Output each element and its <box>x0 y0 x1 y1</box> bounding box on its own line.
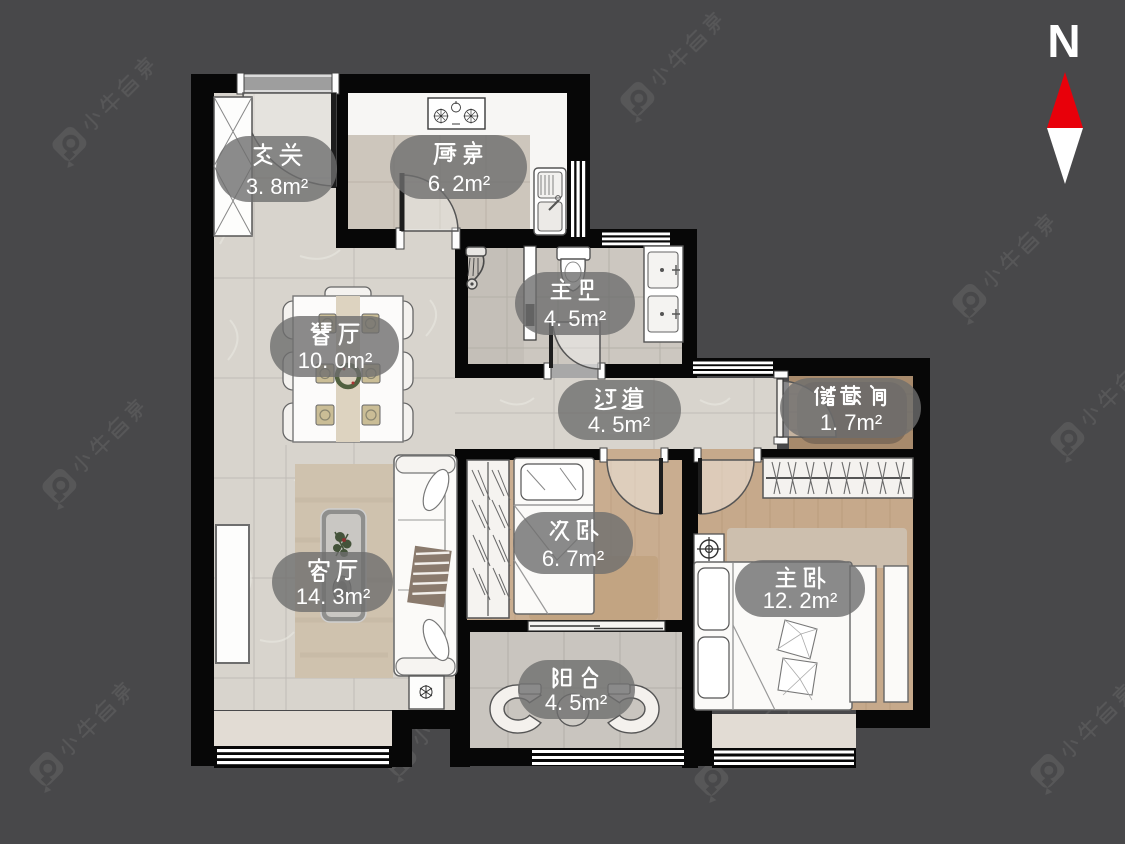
svg-text:1. 7m²: 1. 7m² <box>820 410 882 435</box>
svg-text:12. 2m²: 12. 2m² <box>763 588 838 613</box>
svg-text:6. 2m²: 6. 2m² <box>428 171 490 196</box>
svg-text:10. 0m²: 10. 0m² <box>298 348 373 373</box>
svg-text:3. 8m²: 3. 8m² <box>246 174 308 199</box>
svg-text:N: N <box>1047 15 1080 67</box>
svg-text:4. 5m²: 4. 5m² <box>545 690 607 715</box>
svg-text:14. 3m²: 14. 3m² <box>296 584 371 609</box>
svg-text:6. 7m²: 6. 7m² <box>542 546 604 571</box>
svg-text:4. 5m²: 4. 5m² <box>544 306 606 331</box>
svg-text:4. 5m²: 4. 5m² <box>588 412 650 437</box>
